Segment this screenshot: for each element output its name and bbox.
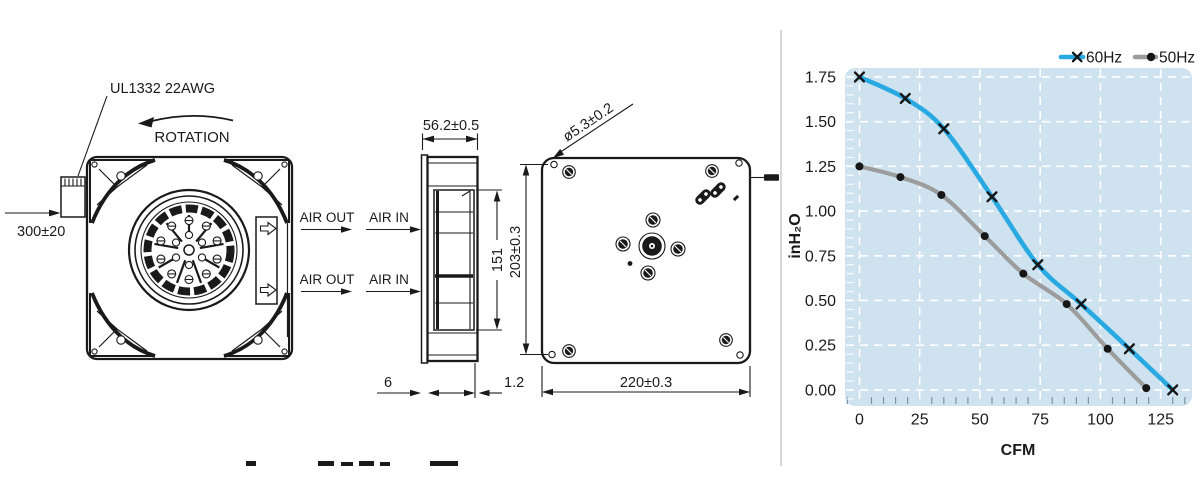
data-marker-dot bbox=[1019, 270, 1027, 278]
cropped-text-fragments bbox=[246, 461, 458, 466]
hole-diameter-annotation: ø5.3±0.2 bbox=[553, 100, 633, 158]
wire-spec-label: UL1332 22AWG bbox=[110, 81, 215, 97]
data-marker-dot bbox=[1142, 384, 1150, 392]
data-marker-dot bbox=[896, 173, 904, 181]
mount-hole bbox=[551, 161, 557, 167]
body-width-dim: 220±0.3 bbox=[620, 375, 672, 391]
x-tick-label: 50 bbox=[971, 412, 989, 429]
lead-wire bbox=[750, 174, 779, 180]
rotation-arrow-icon bbox=[138, 117, 154, 128]
y-tick-label: 0.00 bbox=[805, 382, 836, 399]
y-tick-label: 1.50 bbox=[805, 114, 836, 131]
y-tick-label: 1.25 bbox=[805, 159, 836, 176]
mount-hole bbox=[549, 351, 555, 357]
air-in-label: AIR IN bbox=[369, 272, 409, 287]
impeller bbox=[129, 190, 249, 310]
airflow-indicator-window bbox=[256, 217, 277, 304]
side-width-dim: 56.2±0.5 bbox=[423, 118, 479, 134]
data-marker-dot bbox=[937, 191, 945, 199]
wire-length-dim: 300±20 bbox=[17, 224, 65, 240]
x-tick-label: 75 bbox=[1031, 412, 1049, 429]
x-axis-label: CFM bbox=[1001, 442, 1036, 459]
corner-rivet bbox=[563, 166, 576, 179]
inlet-flange-dim: 6 bbox=[384, 375, 392, 391]
corner-rivet bbox=[563, 345, 576, 358]
data-marker-dot bbox=[855, 162, 863, 170]
legend-dot-marker-icon bbox=[1147, 53, 1155, 61]
rotation-annotation: ROTATION bbox=[138, 116, 233, 146]
impeller-height-dim: 151 bbox=[490, 248, 506, 272]
x-tick-label: 0 bbox=[855, 412, 864, 429]
y-axis-label: inH₂O bbox=[787, 213, 804, 258]
mount-hole bbox=[737, 352, 743, 358]
air-out-label: AIR OUT bbox=[300, 210, 355, 225]
data-marker-dot bbox=[1063, 300, 1071, 308]
body-width-dimension: 220±0.3 bbox=[542, 366, 750, 397]
hole-diameter-dim: ø5.3±0.2 bbox=[560, 100, 616, 145]
y-tick-label: 1.75 bbox=[805, 69, 836, 86]
impeller-hub bbox=[184, 245, 194, 255]
width-dimension: 56.2±0.5 bbox=[423, 118, 480, 150]
y-tick-label: 1.00 bbox=[805, 204, 836, 221]
x-tick-label: 25 bbox=[911, 412, 929, 429]
chart-legend: 60Hz 50Hz bbox=[1061, 50, 1195, 67]
y-tick-label: 0.75 bbox=[805, 248, 836, 265]
x-tick-label: 125 bbox=[1147, 412, 1174, 429]
corner-rivet bbox=[720, 334, 733, 347]
impeller-section bbox=[434, 190, 474, 330]
legend-50hz-label: 50Hz bbox=[1159, 50, 1195, 67]
rotation-label: ROTATION bbox=[154, 129, 229, 146]
data-marker-dot bbox=[981, 232, 989, 240]
x-tick-label: 100 bbox=[1087, 412, 1114, 429]
side-view-drawing: 56.2±0.5 151 6 1.2 bbox=[377, 118, 524, 398]
y-tick-label: 0.50 bbox=[805, 293, 836, 310]
back-view-drawing: ø5.3±0.2 203±0.3 220±0.3 bbox=[508, 100, 779, 397]
legend-60hz-label: 60Hz bbox=[1086, 50, 1122, 67]
air-in-label: AIR IN bbox=[369, 210, 409, 225]
impeller-height-dimension: 151 bbox=[476, 190, 506, 330]
wire-connector bbox=[61, 177, 88, 217]
hole-pitch-dim: 203±0.3 bbox=[508, 226, 524, 278]
corner-rivet bbox=[706, 165, 719, 178]
bottom-dimensions: 6 1.2 bbox=[377, 363, 524, 398]
datasheet-canvas: ROTATION UL1332 22AWG 300±20 AIR OUT AIR… bbox=[0, 0, 1200, 500]
performance-chart: 02550751001250.000.250.500.751.001.251.5… bbox=[787, 50, 1195, 460]
y-tick-label: 0.25 bbox=[805, 338, 836, 355]
fan-datasheet-page: ROTATION UL1332 22AWG 300±20 AIR OUT AIR… bbox=[0, 0, 1200, 500]
air-out-label: AIR OUT bbox=[300, 272, 355, 287]
front-view-drawing: ROTATION UL1332 22AWG 300±20 AIR OUT AIR… bbox=[5, 81, 421, 359]
data-marker-dot bbox=[1104, 345, 1112, 353]
plate-thickness-dim: 1.2 bbox=[504, 375, 524, 391]
airflow-labels: AIR OUT AIR IN AIR OUT AIR IN bbox=[300, 210, 421, 295]
mount-hole bbox=[736, 160, 742, 166]
